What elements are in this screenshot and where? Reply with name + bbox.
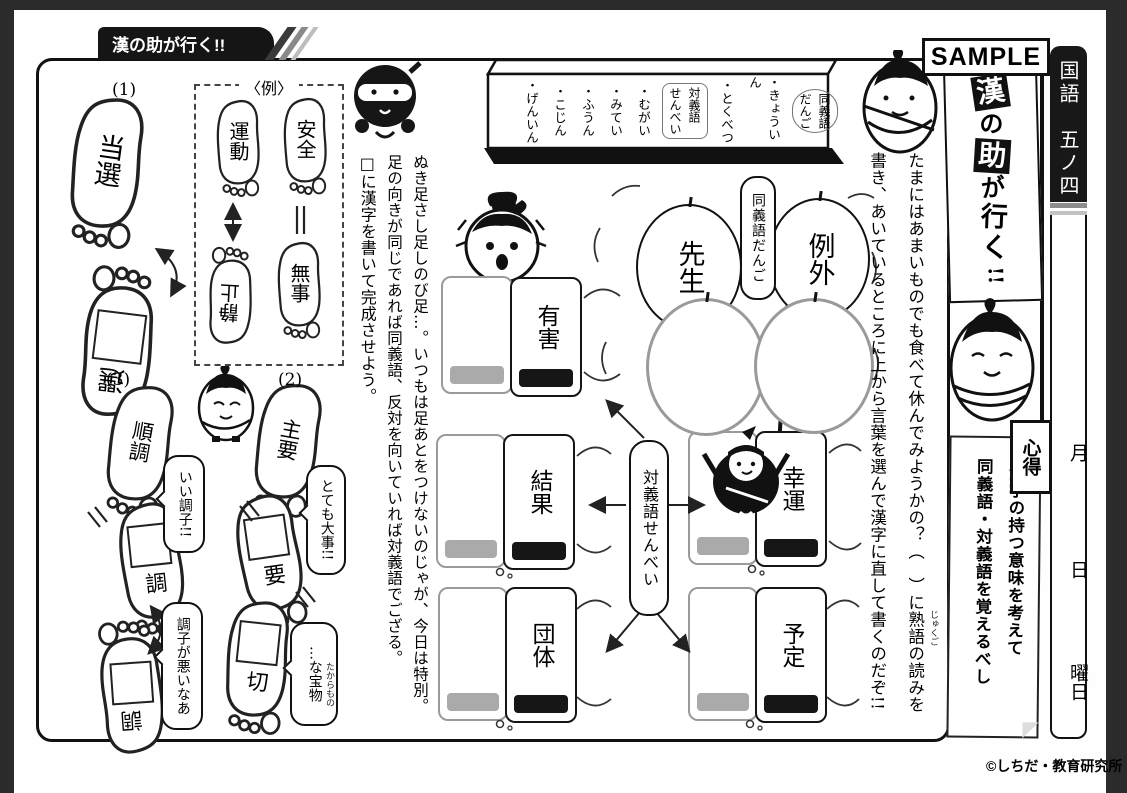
ninja-character-dango	[698, 426, 794, 518]
example-word-undou: 運動	[228, 121, 248, 161]
instruction-right-col1: たまにはあまいものでも食べて休んでみようかの？（ ）に熟語の読みを	[902, 152, 928, 744]
date-month: 月	[1059, 443, 1092, 462]
banner-char-ga: が	[980, 173, 1007, 203]
senbei-blank-yuugai	[441, 276, 513, 394]
senbei-group-label-text: 対義語せんべい	[637, 469, 661, 588]
senbei-card-dantai: 団体	[505, 587, 577, 723]
senbei-card-yuugai: 有害	[510, 277, 582, 397]
word-bank-item: ・ふうん	[578, 85, 597, 137]
banner-char-suke: 助	[973, 138, 1011, 174]
footprint-anzen: 安全	[277, 96, 333, 198]
banner-char-ku: く	[980, 232, 1009, 265]
senbei-card-kekka: 結果	[503, 434, 575, 570]
instruction-left-col1: ぬき足さし足しのび足…。いつもは足あとをつけないのじゃが、今日は特別。	[408, 154, 432, 738]
dango-word-sensei: 先生	[670, 240, 709, 294]
kokoroe-label: 心得	[1018, 438, 1045, 476]
word-bank-item: ・こじん	[550, 85, 569, 137]
word-bank-item: ・みてい	[606, 85, 625, 137]
problem1-given-word: 当選	[90, 132, 124, 189]
footprint-undou: 運動	[210, 98, 266, 200]
example-word-anzen: 安全	[295, 119, 315, 159]
problem3-given-word: 順調	[126, 418, 154, 463]
dango-group-label: 同義語だんご	[740, 176, 776, 300]
instruction-left-col2: 足の向きが同じであれば同義語、反対を向いていれば対義語でござる。	[382, 154, 406, 738]
footprint-buji: 無事	[271, 240, 327, 342]
subject-label: 国語 五ノ四	[1054, 60, 1083, 202]
problem2-bubble2-text: …な宝物	[306, 646, 321, 702]
dango-word-reigai: 例外	[800, 232, 839, 286]
problem3-answer-box2	[109, 661, 154, 706]
kokoroe-line2: 同義語・対義語を覚えるべし	[969, 458, 995, 686]
senbei-word-dantai: 団体	[507, 599, 575, 691]
date-strip: 月 日 曜日	[1050, 215, 1087, 739]
banner-char-no: の	[979, 110, 1004, 138]
problem1-answer-box	[92, 309, 148, 365]
word-bank-item: ・きょういん	[745, 76, 783, 146]
senbei-word-yotei: 予定	[757, 599, 825, 691]
worksheet-photo: { "colors":{"ink":"#1a1a1a","gray_outlin…	[0, 0, 1127, 793]
kokoroe-label-box: 心得	[1010, 420, 1052, 494]
problem3-bubble1-text: いい調子!!	[176, 470, 191, 537]
problem3-answer-kanji1: 調	[141, 571, 165, 595]
dango-ball-blank-left	[646, 298, 766, 436]
word-bank-item: ・とくべつ	[717, 79, 736, 144]
senbei-word-yuugai: 有害	[512, 289, 580, 365]
problem2-answer-box1	[243, 513, 290, 560]
subject-stripe-1	[1050, 203, 1087, 208]
problem2-answer-kanji1: 要	[259, 562, 284, 587]
banner-flag: 漢 の 助 が 行 く !!	[943, 63, 1043, 303]
dango-group-label-text: 同義語だんご	[748, 193, 768, 283]
problem3-bubble1: いい調子!!	[163, 455, 205, 553]
instruction-left-col3: □に漢字を書いて完成させよう。	[354, 154, 379, 738]
word-bank-signboard: 同義語 だんご ・きょういん ・とくべつ 対義語 せんべい ・むがい ・みてい …	[482, 56, 846, 168]
problem2-bubble1: とても大事!!	[306, 465, 346, 575]
problem2-bubble1-text: とても大事!!	[318, 479, 333, 560]
copyright-text: ©しちだ・教育研究所	[986, 756, 1122, 776]
ninja-character-head	[348, 60, 422, 150]
footprint-seishi: 静止	[200, 243, 261, 348]
problem2-answer-kanji2: 切	[243, 669, 267, 693]
instruction-right-col2: 書き、あいているところに上から言葉を選んで漢字に直して書くのだぞ!!	[864, 152, 890, 744]
problem2-answer-box2	[236, 620, 282, 666]
problem3-number: (3)	[106, 370, 130, 390]
senbei-word-kekka: 結果	[505, 446, 573, 538]
antonym-label-line2: せんべい	[667, 87, 684, 135]
problem1-number: (1)	[112, 80, 136, 100]
date-weekday: 曜日	[1059, 663, 1092, 701]
banner-char-bang: !!	[984, 266, 1007, 284]
sample-label: SAMPLE	[931, 43, 1041, 72]
word-bank-item: ・むがい	[634, 85, 653, 137]
date-day: 日	[1059, 560, 1092, 579]
senbei-group-label: 対義語せんべい	[629, 440, 669, 616]
banner-char-i: 行	[980, 201, 1008, 233]
antonym-label-line1: 対義語	[686, 87, 703, 135]
problem2-given-word: 主要	[274, 416, 302, 461]
problem3-bubble2: 調子が悪いなあ	[161, 602, 203, 730]
problem3-bubble2-text: 調子が悪いなあ	[174, 617, 189, 715]
banner-char-kan: 漢	[970, 73, 1011, 112]
header-tab-title: 漢の助が行く!!	[112, 31, 225, 56]
furigana-takaramono: たからもの	[323, 662, 336, 714]
subject-tab: 国語 五ノ四	[1050, 46, 1087, 202]
senbei-blank-dantai	[438, 587, 508, 721]
furigana-jukugo: じゅくご	[927, 610, 940, 656]
dango-ball-blank-right	[754, 298, 874, 434]
senbei-blank-kekka	[436, 434, 506, 568]
sample-stamp: SAMPLE	[922, 38, 1050, 76]
sumo-character-small	[194, 366, 258, 442]
sumo-character-banner	[944, 298, 1042, 428]
word-bank-label-synonym: 同義語 だんご	[792, 89, 838, 133]
problem2-number: (2)	[278, 370, 302, 390]
word-bank-item: ・げんいん	[522, 79, 541, 144]
word-bank-label-antonym: 対義語 せんべい	[662, 83, 708, 139]
header-tab: 漢の助が行く!!	[98, 27, 274, 60]
senbei-blank-yotei	[688, 587, 758, 721]
senbei-card-yotei: 予定	[755, 587, 827, 723]
example-word-buji: 無事	[289, 263, 309, 303]
example-word-seishi: 静止	[220, 283, 242, 324]
subject-stripe-2	[1050, 211, 1087, 215]
word-bank-list: 同義語 だんご ・きょういん ・とくべつ 対義語 せんべい ・むがい ・みてい …	[494, 76, 846, 146]
synonym-label-line2: だんご	[797, 93, 814, 129]
synonym-label-line1: 同義語	[816, 93, 833, 129]
problem3-answer-kanji2: 調	[123, 709, 146, 732]
